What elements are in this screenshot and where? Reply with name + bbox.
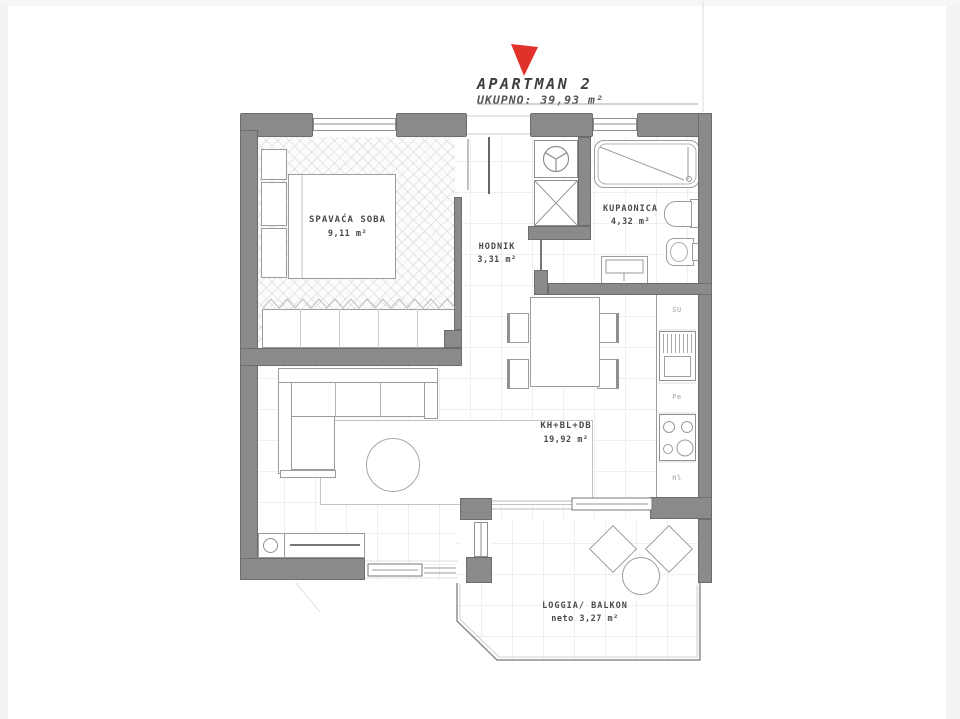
room-name: SPAVAĆA SOBA [270, 214, 425, 228]
bathtub [594, 140, 700, 188]
site-line [296, 583, 320, 612]
sofa-cushion-line [335, 383, 336, 416]
wardrobe-divider [417, 309, 418, 348]
sofa-chaise [291, 416, 335, 470]
coffee-table [366, 438, 420, 492]
sofa-foot [280, 470, 336, 478]
room-name: KH+BL+DB [518, 420, 614, 434]
washing-machine [601, 256, 648, 284]
floor-plan: APARTMAN 2 UKUPNO: 39,93 m² [0, 0, 960, 719]
stove [659, 414, 696, 461]
dining-chair [507, 313, 529, 343]
sink-drainboard [663, 334, 692, 353]
room-label-bedroom: SPAVAĆA SOBA 9,11 m² [270, 214, 425, 240]
plan-title: APARTMAN 2 [477, 75, 592, 93]
wall [698, 519, 712, 583]
room-name: LOGGIA/ BALKON [515, 600, 655, 613]
room-name: KUPAONICA [583, 203, 678, 216]
wall [530, 113, 593, 137]
sink-basin [664, 356, 691, 377]
sofa-seat [291, 382, 425, 417]
page-edge-left [0, 0, 8, 719]
wall [240, 348, 462, 366]
room-area: neto 3,27 m² [515, 613, 655, 626]
wall [534, 270, 548, 295]
dining-chair [597, 359, 619, 389]
sofa-armrest [278, 382, 292, 474]
dining-chair [597, 313, 619, 343]
wardrobe-divider [339, 309, 340, 348]
sofa-armrest [424, 382, 438, 419]
plan-total-area: UKUPNO: 39,93 m² [477, 93, 604, 107]
room-area: 9,11 m² [270, 228, 425, 241]
room-area: 4,32 m² [583, 216, 678, 229]
room-name: HODNIK [452, 241, 542, 254]
loggia-table [622, 557, 660, 595]
dining-chair [507, 359, 529, 389]
label-kitchen-fridge: Hl [665, 474, 689, 482]
wall [698, 113, 712, 519]
speaker-icon [263, 538, 278, 553]
room-label-loggia: LOGGIA/ BALKON neto 3,27 m² [515, 600, 655, 626]
ventilation-box [534, 140, 578, 178]
wardrobe [262, 309, 455, 348]
sofa-cushion-line [380, 383, 381, 416]
wall [528, 226, 591, 240]
window [313, 118, 396, 131]
wall [466, 557, 492, 583]
window [593, 118, 637, 131]
wall [444, 330, 462, 348]
wall [460, 498, 492, 520]
wall [650, 497, 712, 519]
room-label-bathroom: KUPAONICA 4,32 m² [583, 203, 678, 229]
room-label-living: KH+BL+DB 19,92 m² [518, 420, 614, 446]
wall [548, 283, 712, 295]
room-area: 19,92 m² [518, 434, 614, 447]
page-edge-top [0, 0, 960, 6]
window [474, 522, 488, 557]
shaft-box [534, 180, 578, 226]
entrance-arrow-icon [511, 44, 538, 76]
room-area: 3,31 m² [452, 254, 542, 267]
wardrobe-divider [378, 309, 379, 348]
room-label-hallway: HODNIK 3,31 m² [452, 241, 542, 267]
page-edge-right [946, 0, 960, 719]
label-kitchen-sink: SU [665, 306, 689, 314]
wall [637, 113, 704, 137]
wall [240, 558, 365, 580]
wardrobe-divider [300, 309, 301, 348]
dining-table [530, 297, 600, 387]
wall [396, 113, 467, 137]
label-kitchen-oven: Pe [665, 393, 689, 401]
nightstand [261, 149, 287, 180]
washbasin [666, 238, 694, 266]
sofa-backrest [278, 368, 438, 383]
